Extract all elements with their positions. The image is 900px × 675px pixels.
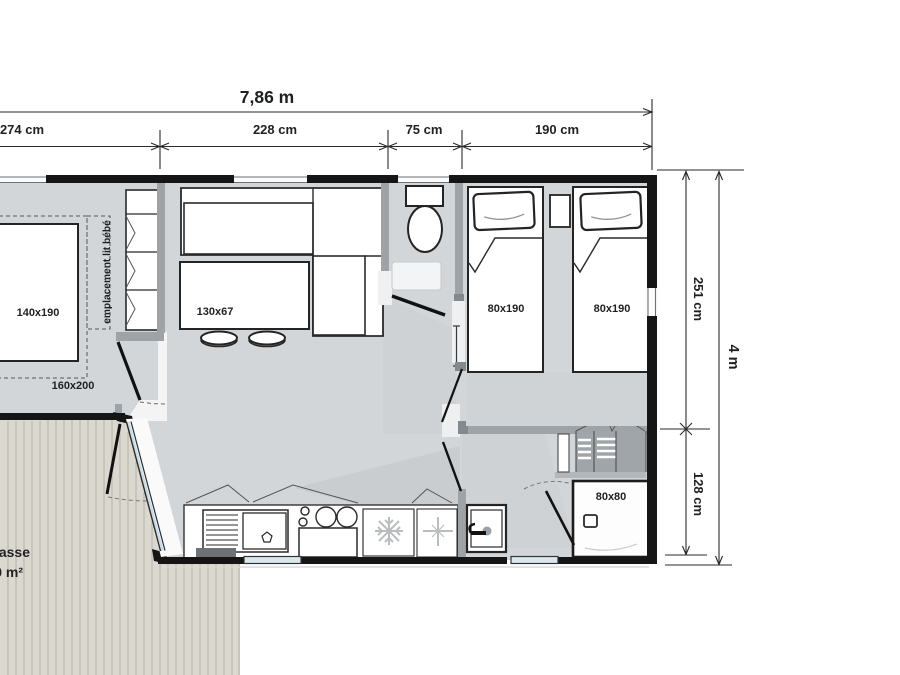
svg-text:160x200: 160x200 [52,380,95,392]
svg-text:251 cm: 251 cm [691,277,706,321]
svg-text:80x190: 80x190 [488,303,525,315]
svg-text:274 cm: 274 cm [0,122,44,137]
svg-text:7,86 m: 7,86 m [240,87,294,107]
svg-text:10 m²: 10 m² [0,564,23,580]
svg-text:Terrasse: Terrasse [0,544,30,560]
svg-text:4 m: 4 m [725,345,741,370]
svg-text:80x80: 80x80 [596,491,627,503]
svg-text:75 cm: 75 cm [406,122,443,137]
svg-text:emplacement lit bébé: emplacement lit bébé [102,220,113,324]
svg-text:190 cm: 190 cm [535,122,579,137]
svg-text:130x67: 130x67 [197,306,234,318]
svg-text:140x190: 140x190 [17,307,60,319]
svg-text:128 cm: 128 cm [691,472,706,516]
svg-text:80x190: 80x190 [594,303,631,315]
svg-text:228 cm: 228 cm [253,122,297,137]
